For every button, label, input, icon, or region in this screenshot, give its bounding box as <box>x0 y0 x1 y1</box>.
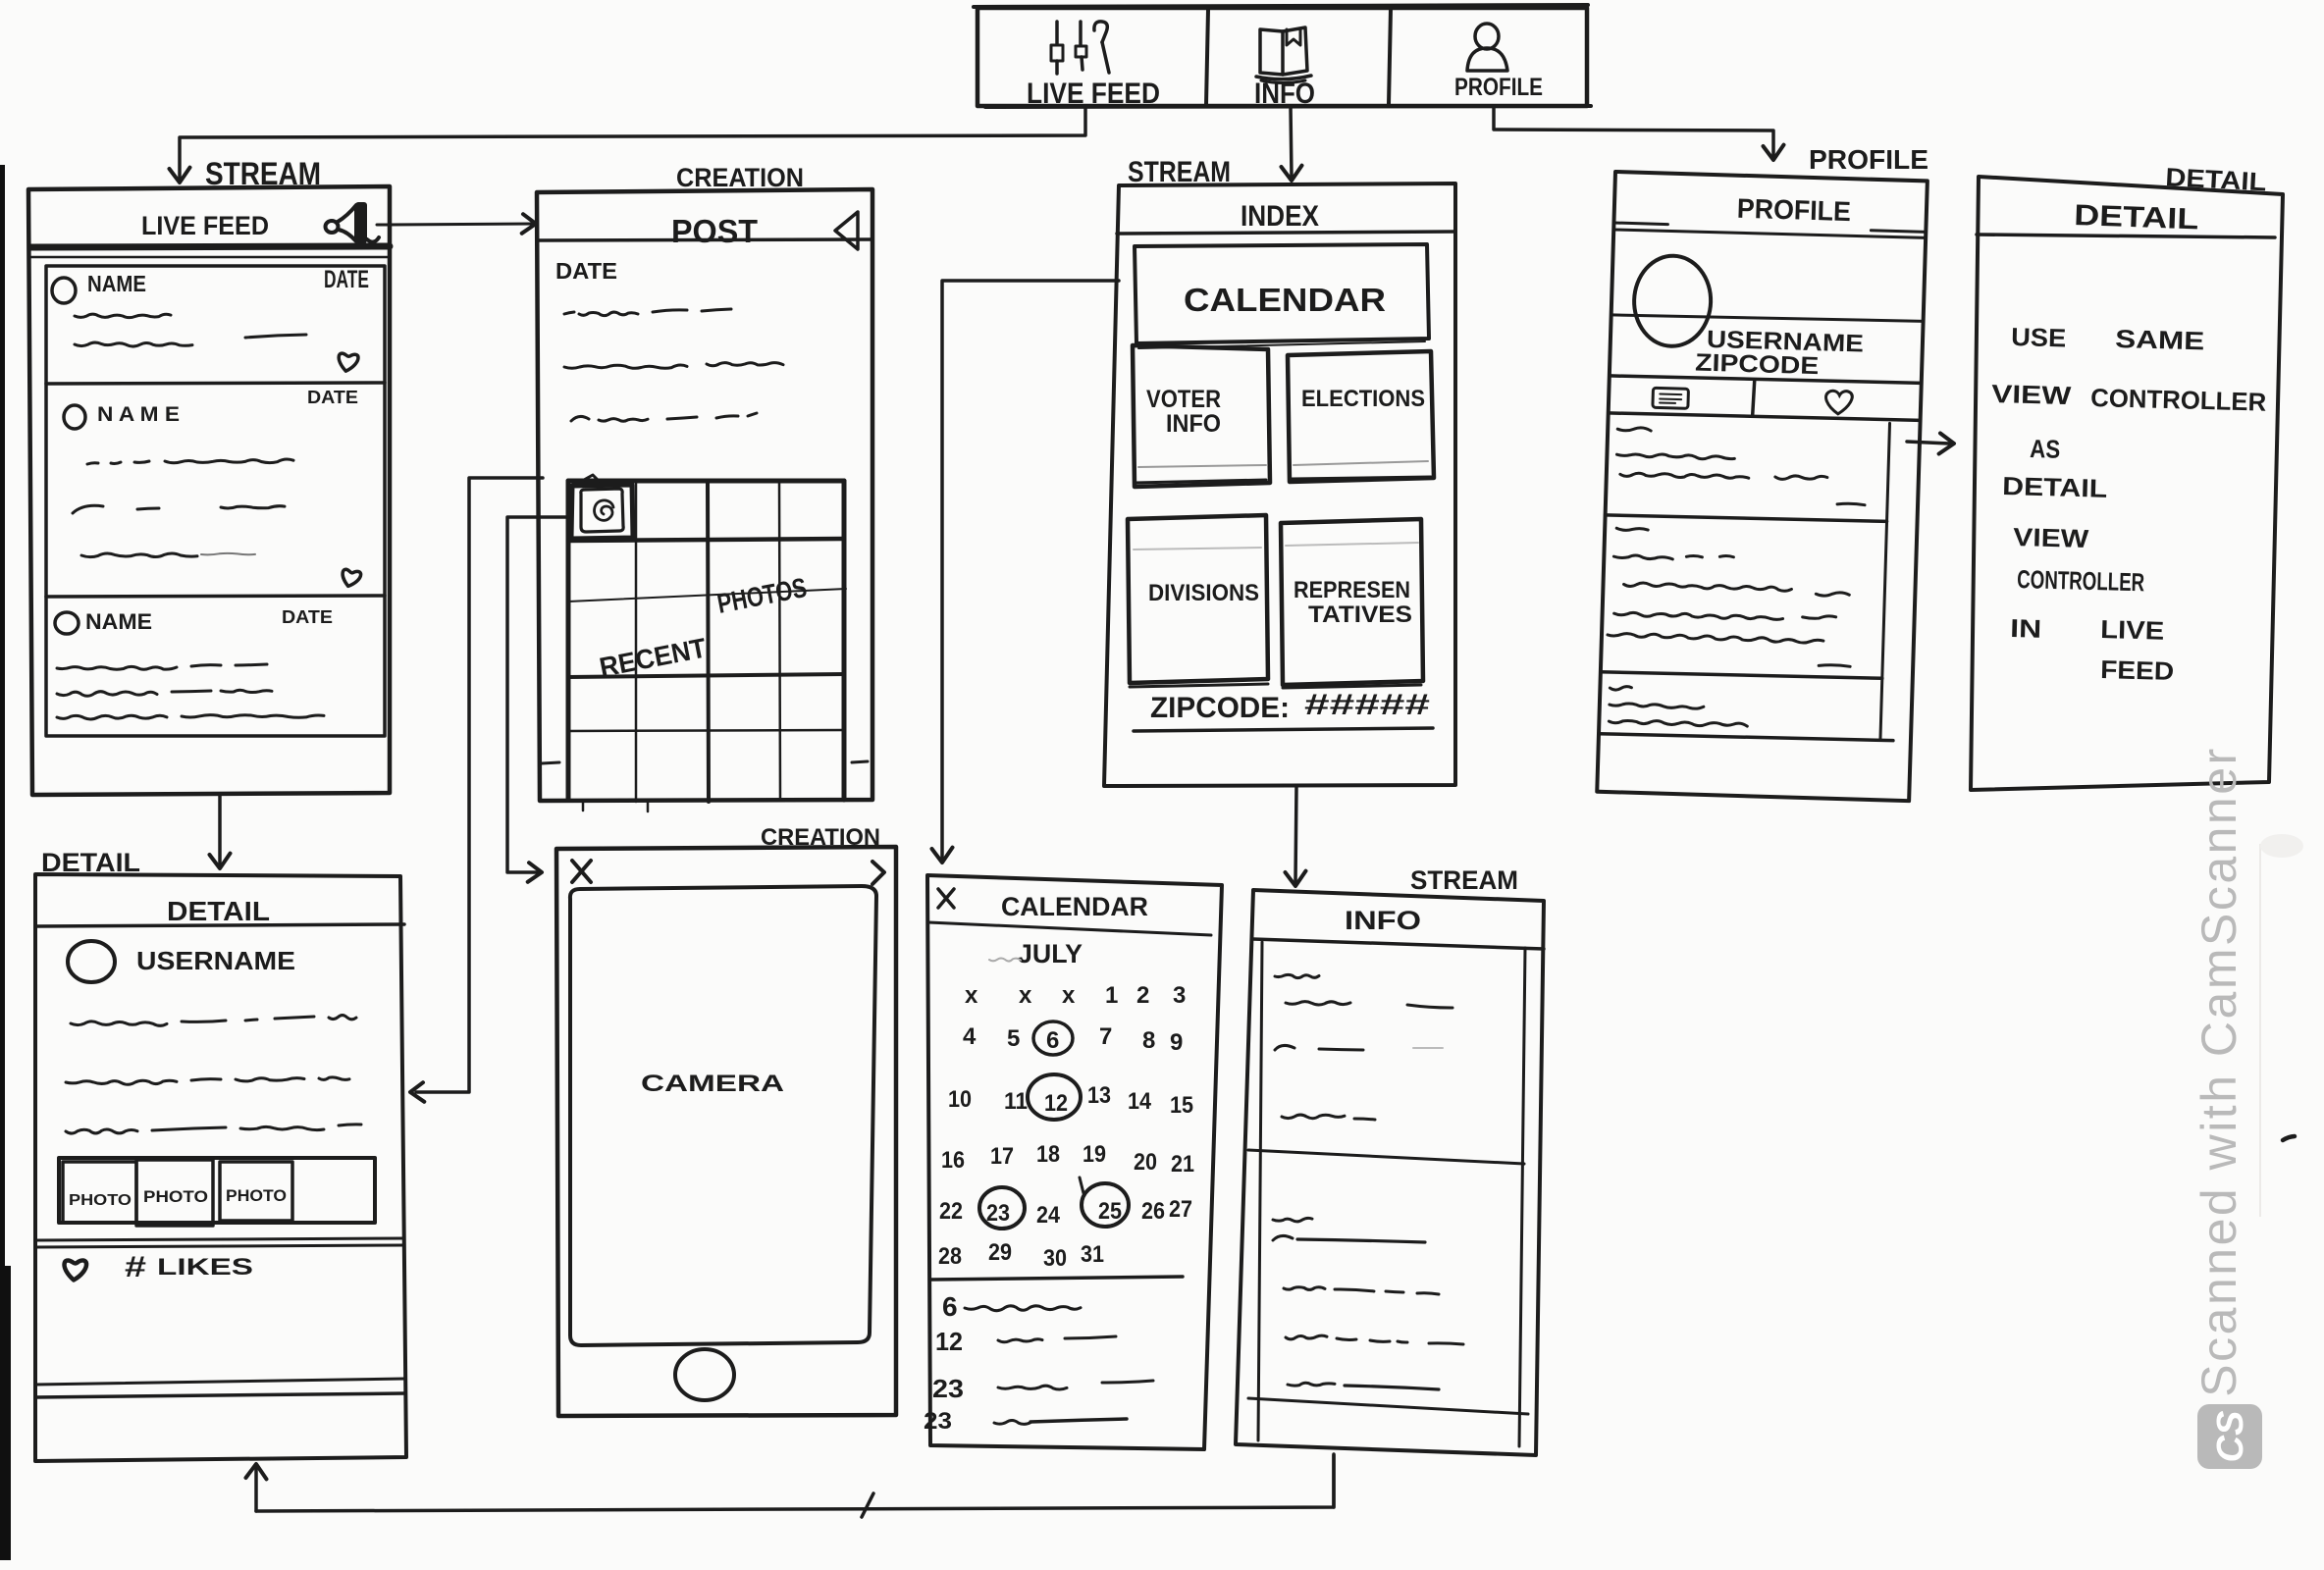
svg-text:17: 17 <box>990 1143 1014 1170</box>
svg-text:PHOTO: PHOTO <box>143 1187 208 1206</box>
svg-text:30: 30 <box>1043 1245 1067 1272</box>
svg-text:18: 18 <box>1036 1141 1060 1168</box>
svg-text:VIEW: VIEW <box>2013 522 2089 553</box>
svg-text:LIKES: LIKES <box>157 1254 253 1281</box>
svg-text:N A M E: N A M E <box>97 403 180 426</box>
svg-text:27: 27 <box>1169 1196 1192 1223</box>
svg-text:SAME: SAME <box>2115 324 2205 355</box>
svg-text:23: 23 <box>924 1408 952 1435</box>
svg-text:2: 2 <box>1136 982 1149 1009</box>
svg-text:DETAIL: DETAIL <box>2165 162 2268 196</box>
svg-text:IN: IN <box>2010 613 2042 644</box>
svg-text:AS: AS <box>2030 434 2061 464</box>
svg-text:PHOTO: PHOTO <box>69 1192 132 1209</box>
svg-text:x: x <box>1062 982 1076 1009</box>
svg-text:15: 15 <box>1170 1092 1193 1119</box>
svg-text:6: 6 <box>942 1291 958 1322</box>
svg-text:12: 12 <box>1044 1090 1068 1117</box>
svg-text:FEED: FEED <box>2100 654 2175 686</box>
svg-text:12: 12 <box>935 1327 963 1356</box>
svg-text:DETAIL: DETAIL <box>167 896 270 926</box>
svg-text:31: 31 <box>1081 1241 1104 1268</box>
svg-text:#####: ##### <box>1304 689 1430 721</box>
svg-text:7: 7 <box>1099 1023 1112 1050</box>
svg-text:POST: POST <box>671 213 758 249</box>
svg-text:24: 24 <box>1036 1202 1061 1229</box>
svg-text:DATE: DATE <box>282 607 333 627</box>
svg-text:#: # <box>125 1251 146 1283</box>
svg-text:DATE: DATE <box>555 258 617 284</box>
svg-text:LIVE FEED: LIVE FEED <box>141 211 269 240</box>
svg-text:INFO: INFO <box>1254 78 1315 110</box>
svg-text:VOTER: VOTER <box>1146 386 1221 413</box>
svg-text:19: 19 <box>1083 1141 1106 1168</box>
svg-text:CREATION: CREATION <box>761 824 880 851</box>
svg-text:23: 23 <box>986 1200 1010 1227</box>
svg-text:ZIPCODE:: ZIPCODE: <box>1150 692 1290 724</box>
svg-text:CONTROLLER: CONTROLLER <box>2090 383 2267 417</box>
svg-text:VIEW: VIEW <box>1991 379 2072 410</box>
svg-text:USE: USE <box>2011 322 2067 352</box>
svg-text:26: 26 <box>1141 1198 1165 1225</box>
svg-text:NAME: NAME <box>85 609 152 634</box>
svg-text:DETAIL: DETAIL <box>2002 471 2108 503</box>
svg-text:14: 14 <box>1128 1088 1152 1115</box>
svg-text:23: 23 <box>932 1374 964 1403</box>
svg-text:1: 1 <box>1105 982 1118 1009</box>
svg-text:INDEX: INDEX <box>1241 200 1319 233</box>
svg-text:21: 21 <box>1171 1151 1194 1177</box>
svg-text:10: 10 <box>948 1086 972 1113</box>
svg-text:CAMERA: CAMERA <box>641 1071 784 1097</box>
svg-text:CALENDAR: CALENDAR <box>1001 892 1148 921</box>
svg-text:11: 11 <box>1004 1088 1028 1115</box>
svg-text:28: 28 <box>938 1243 962 1270</box>
svg-text:JULY: JULY <box>1018 939 1083 968</box>
svg-text:DATE: DATE <box>307 388 358 407</box>
svg-text:LIVE: LIVE <box>2100 614 2165 646</box>
svg-text:22: 22 <box>939 1198 963 1225</box>
svg-text:USERNAME: USERNAME <box>136 946 295 975</box>
svg-text:DETAIL: DETAIL <box>41 848 140 877</box>
svg-text:16: 16 <box>941 1147 965 1174</box>
svg-text:TATIVES: TATIVES <box>1308 602 1412 628</box>
svg-text:9: 9 <box>1170 1029 1183 1056</box>
svg-text:DETAIL: DETAIL <box>2074 199 2199 235</box>
svg-text:REPRESEN: REPRESEN <box>1294 577 1410 603</box>
svg-text:INFO: INFO <box>1166 410 1221 438</box>
svg-text:CREATION: CREATION <box>676 163 804 192</box>
svg-text:6: 6 <box>1046 1027 1059 1054</box>
svg-text:13: 13 <box>1087 1082 1111 1109</box>
svg-text:PROFILE: PROFILE <box>1736 193 1851 227</box>
svg-text:STREAM: STREAM <box>1410 865 1518 895</box>
svg-text:3: 3 <box>1173 982 1186 1009</box>
svg-text:29: 29 <box>988 1239 1012 1266</box>
svg-text:CONTROLLER: CONTROLLER <box>2017 564 2145 597</box>
svg-text:PHOTO: PHOTO <box>226 1186 287 1205</box>
svg-text:5: 5 <box>1007 1025 1020 1052</box>
svg-text:x: x <box>1019 982 1032 1009</box>
svg-text:DATE: DATE <box>324 266 369 293</box>
svg-text:PROFILE: PROFILE <box>1454 74 1543 101</box>
svg-text:INFO: INFO <box>1345 906 1421 935</box>
svg-text:20: 20 <box>1134 1149 1157 1176</box>
svg-text:CS: CS <box>2210 1411 2251 1463</box>
svg-text:LIVE FEED: LIVE FEED <box>1027 78 1160 110</box>
svg-text:x: x <box>965 982 978 1009</box>
svg-text:4: 4 <box>963 1023 977 1050</box>
svg-text:DIVISIONS: DIVISIONS <box>1148 580 1259 606</box>
svg-text:8: 8 <box>1142 1027 1155 1054</box>
svg-text:Scanned with CamScanner: Scanned with CamScanner <box>2192 746 2246 1396</box>
svg-text:ELECTIONS: ELECTIONS <box>1301 386 1425 412</box>
svg-text:NAME: NAME <box>87 271 146 296</box>
svg-text:ZIPCODE: ZIPCODE <box>1695 349 1820 381</box>
svg-text:PROFILE: PROFILE <box>1809 144 1928 175</box>
svg-text:CALENDAR: CALENDAR <box>1184 282 1386 318</box>
